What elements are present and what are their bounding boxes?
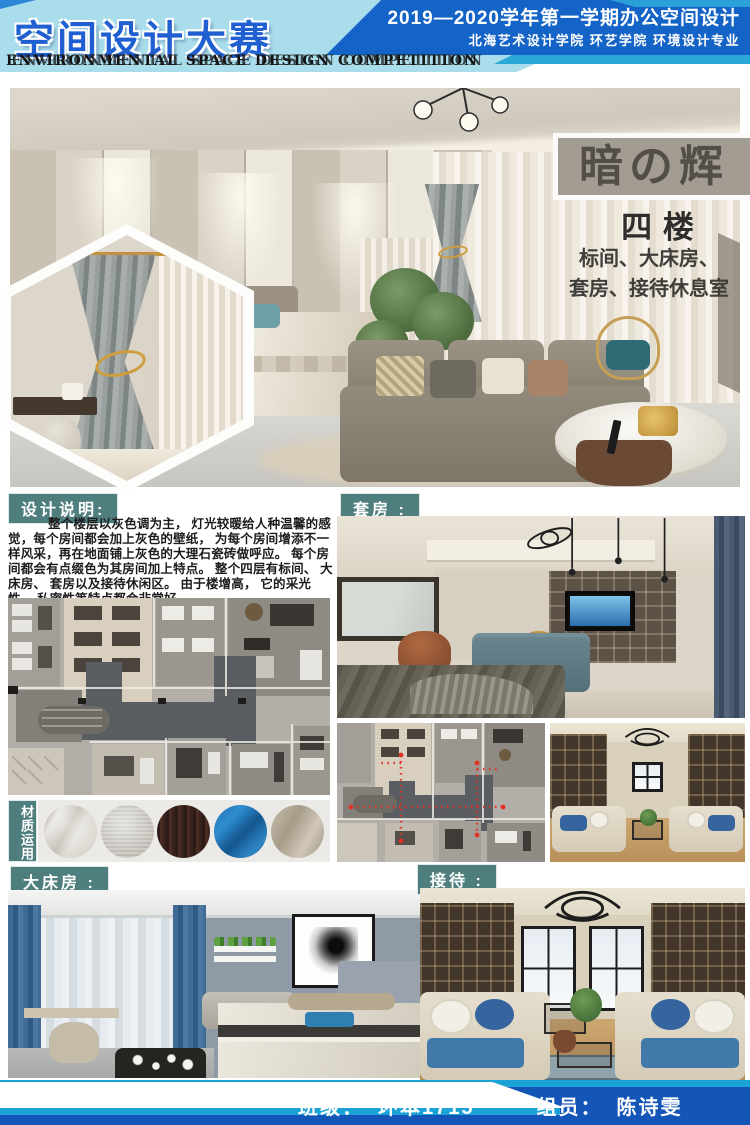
light-pillow xyxy=(482,358,524,394)
back-window xyxy=(632,762,663,793)
project-title: 暗の辉 xyxy=(579,145,729,189)
footer-credits: 班级： 环本1715 组员： 陈诗雯 xyxy=(298,1091,683,1120)
shelf-plants xyxy=(214,937,276,946)
white-pillow xyxy=(693,999,735,1034)
header-white-wedge xyxy=(514,64,750,73)
materials-panel xyxy=(38,800,330,862)
material-swatch-marble xyxy=(44,805,97,858)
header-right-block: 2019—2020学年第一学期办公空间设计 北海艺术设计学院 环艺学院 环境设计… xyxy=(387,7,740,51)
member-label: 组员： xyxy=(537,1091,603,1120)
blue-cushion xyxy=(560,815,587,832)
sputnik-lamp xyxy=(408,88,518,134)
teal-chair-cushion xyxy=(606,340,650,370)
desk xyxy=(13,397,97,414)
floor-label: 四 楼 xyxy=(575,202,740,247)
material-swatch-dark-wood xyxy=(157,805,210,858)
circulation-floorplan xyxy=(337,723,545,862)
rooms-list: 标间、大床房、 套房、接待休息室 xyxy=(553,243,745,303)
suite-photo xyxy=(337,516,745,718)
project-title-box: 暗の辉 xyxy=(553,133,750,200)
brown-pillow xyxy=(528,360,568,396)
blue-curtain xyxy=(714,516,745,718)
material-swatch-taupe-fabric xyxy=(271,805,324,858)
rooms-line-2: 套房、接待休息室 xyxy=(553,273,745,303)
white-pillow xyxy=(430,999,472,1034)
bonsai xyxy=(570,988,603,1023)
header: 空间设计大赛 ENVIRONMENTAL SPACE DESIGN COMPET… xyxy=(0,0,750,78)
class-label: 班级： xyxy=(298,1091,364,1120)
dark-pillow xyxy=(430,360,476,398)
material-swatch-gray-fabric xyxy=(101,805,154,858)
desk xyxy=(24,1008,119,1017)
teapot xyxy=(553,1030,576,1053)
gold-decor xyxy=(638,406,678,436)
design-note-body: 整个楼层以灰色调为主， 灯光较暖给人种温馨的感觉，每个房间都会加上灰色的壁纸， … xyxy=(8,517,334,601)
sheer-window xyxy=(16,909,189,1056)
white-pillow xyxy=(589,811,609,829)
bed-stripe xyxy=(218,1025,420,1036)
floorplan-overview xyxy=(8,598,330,795)
blue-curtain-left xyxy=(8,905,41,1067)
plant xyxy=(640,809,658,826)
hexagon-photo-content xyxy=(11,235,243,481)
ring-chandelier xyxy=(511,888,654,923)
member-value: 陈诗雯 xyxy=(617,1091,683,1120)
materials-label: 材质运用 xyxy=(8,800,37,862)
rooms-line-1: 标间、大床房、 xyxy=(553,243,745,273)
blue-seat-cushion xyxy=(641,1038,739,1069)
footer: 班级： 环本1715 组员： 陈诗雯 xyxy=(0,1080,750,1125)
header-cyan-stripe xyxy=(494,55,750,64)
material-swatch-blue-fabric xyxy=(214,805,267,858)
competition-poster: 空间设计大赛 ENVIRONMENTAL SPACE DESIGN COMPET… xyxy=(0,0,750,1125)
school-line: 北海艺术设计学院 环艺学院 环境设计专业 xyxy=(387,31,740,51)
white-pillow xyxy=(687,811,707,829)
desk-chair xyxy=(49,1022,98,1063)
swirl-ceiling-lamp xyxy=(517,524,582,552)
blue-pillow xyxy=(305,1012,354,1027)
blue-cushion xyxy=(708,815,735,832)
desk-items xyxy=(62,383,83,400)
orchid-arrangement xyxy=(115,1048,206,1078)
wall-shelf xyxy=(214,946,276,952)
blue-throw xyxy=(198,1040,330,1078)
class-value: 环本1715 xyxy=(378,1091,475,1120)
coffee-table-base xyxy=(576,440,672,486)
competition-title-en: ENVIRONMENTAL SPACE DESIGN COMPETITION xyxy=(6,53,479,69)
blue-seat-cushion xyxy=(427,1038,525,1069)
bolster-pillows xyxy=(288,993,395,1010)
ring-chandelier xyxy=(620,726,675,748)
royal-blue-pillow xyxy=(651,999,690,1030)
reception-photo xyxy=(420,888,745,1080)
patterned-pillow xyxy=(376,356,424,396)
reception-mid-photo xyxy=(550,723,745,862)
king-room-photo xyxy=(8,890,420,1078)
course-line: 2019—2020学年第一学期办公空间设计 xyxy=(387,7,740,31)
